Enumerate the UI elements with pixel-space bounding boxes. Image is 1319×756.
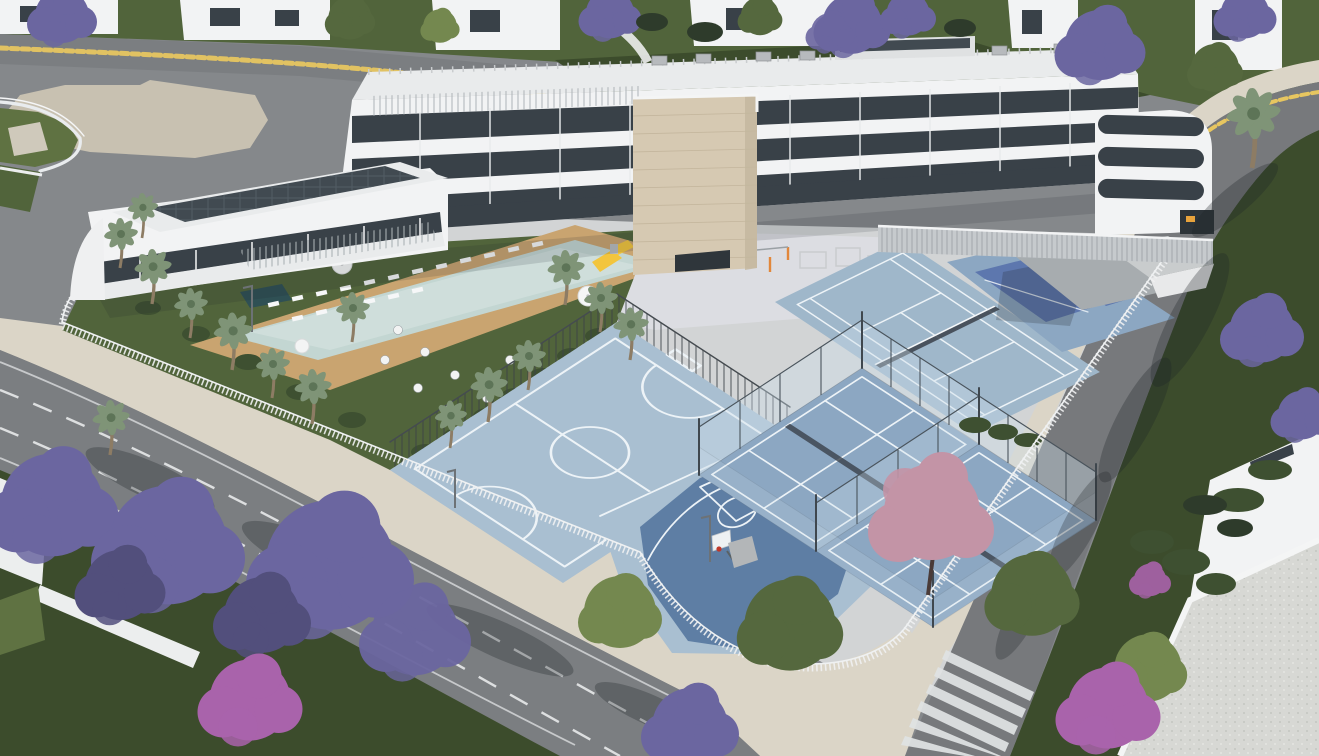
- wing-window-bands: [1098, 115, 1204, 201]
- aerial-render: [0, 0, 1319, 756]
- render-canvas: [0, 0, 1319, 756]
- storefront-glow: [1186, 216, 1195, 222]
- stone-tower: [633, 95, 757, 275]
- hoop-rim: [716, 546, 721, 551]
- tower-shade-edge: [745, 95, 757, 270]
